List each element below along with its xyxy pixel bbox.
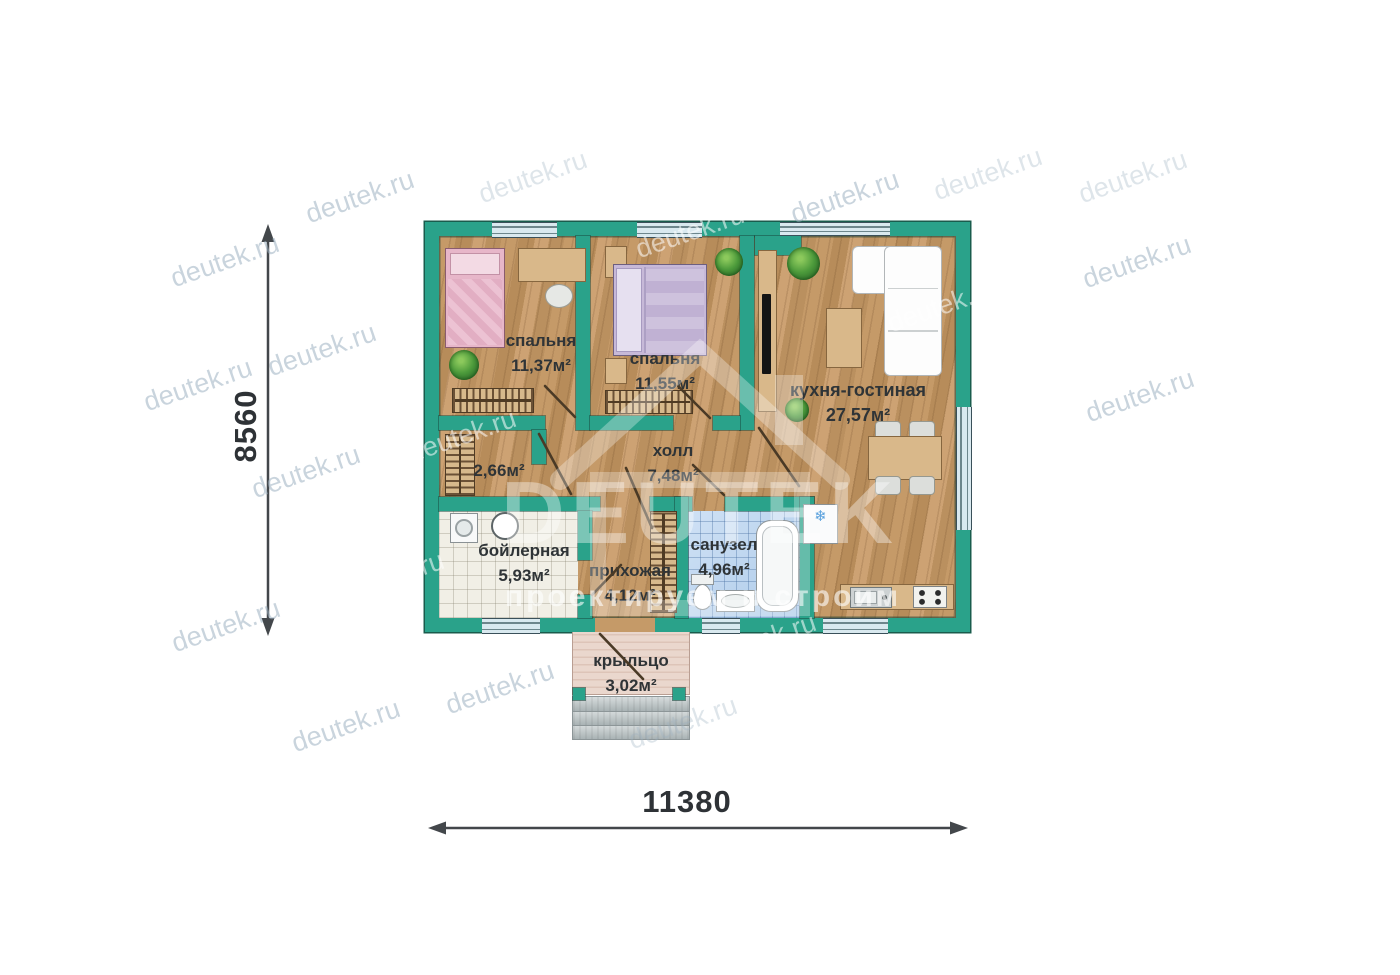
watermark-text: deutek.ru [930,141,1047,207]
room-area: 3,02м² [593,673,669,698]
nightstand-icon [605,358,627,384]
room-name: спальня [630,346,701,371]
window [492,222,557,238]
wall [713,416,740,430]
watermark-text: deutek.ru [1082,363,1199,429]
bathroom-sink-icon [716,590,755,612]
desk-chair-icon [545,284,573,308]
room-name: прихожая [589,558,671,583]
bed-icon [445,248,505,348]
watermark-text: deutek.ru [167,228,284,294]
coffee-table-icon [826,308,862,368]
room-area: 2,66м² [473,458,524,483]
room-name: крыльцо [593,648,669,673]
room-area: 5,93м² [478,563,569,588]
room-name: спальня [506,328,577,353]
fridge-icon [803,504,838,544]
room-name: бойлерная [478,538,569,563]
blanket-icon [644,267,704,353]
window [956,407,972,530]
window [482,618,540,634]
room-label-hall: холл 7,48м² [647,438,698,488]
porch-column [673,688,685,700]
watermark-text: deutek.ru [302,164,419,230]
kitchen-sink-icon [850,587,892,608]
watermark-text: deutek.ru [264,317,381,383]
blanket-icon [448,279,502,345]
room-area: 11,55м² [630,371,701,396]
watermark-text: deutek.ru [288,693,405,759]
room-label-entry: прихожая 4,12м² [589,558,671,608]
stove-icon [913,586,947,608]
pillow-icon [450,253,500,275]
boiler-icon [491,512,519,540]
room-name: холл [647,438,698,463]
watermark-text: deutek.ru [475,144,592,210]
watermark-text: deutek.ru [1075,144,1192,210]
room-name: санузел [690,532,757,557]
washing-machine-icon [450,513,478,543]
wall [578,511,592,560]
height-dimension-label: 8560 [228,390,264,463]
chair-icon [909,476,935,495]
watermark-text: deutek.ru [442,655,559,721]
room-label-kitchen-living: кухня-гостиная 27,57м² [790,378,926,428]
plant-icon [787,247,820,280]
plant-icon [715,248,743,276]
porch-deck: крыльцо 3,02м² [572,632,690,695]
window [823,618,888,634]
window [702,618,740,634]
plant-icon [449,350,479,380]
tv-icon [762,294,771,374]
chair-icon [875,476,901,495]
wall [532,430,546,464]
room-label-closet: 2,66м² [473,458,524,483]
porch-column [573,688,585,700]
watermark-text: deutek.ru [787,164,904,230]
watermark-text: deutek.ru [168,593,285,659]
room-name: кухня-гостиная [790,378,926,403]
room-label-boiler: бойлерная 5,93м² [478,538,569,588]
room-label-bathroom: санузел 4,96м² [690,532,757,582]
room-label-porch: крыльцо 3,02м² [593,648,669,698]
room-label-bedroom1: спальня 11,37м² [506,328,577,378]
watermark-text: deutek.ru [1079,229,1196,295]
width-dimension-label: 11380 [642,784,732,820]
room-area: 11,37м² [506,353,577,378]
double-bed-icon [613,264,707,356]
wall [590,416,673,430]
bathtub-icon [756,520,799,612]
room-area: 27,57м² [790,403,926,428]
room-label-bedroom2: спальня 11,55м² [630,346,701,396]
entrance-doorway [595,618,655,632]
wall [439,497,600,511]
room-area: 7,48м² [647,463,698,488]
watermark-text: deutek.ru [248,439,365,505]
room-area: 4,12м² [589,583,671,608]
dining-table-icon [868,436,942,480]
room-area: 4,96м² [690,557,757,582]
width-dimension-arrow [428,822,968,835]
desk-icon [518,248,586,282]
pillow-icon [616,268,642,352]
